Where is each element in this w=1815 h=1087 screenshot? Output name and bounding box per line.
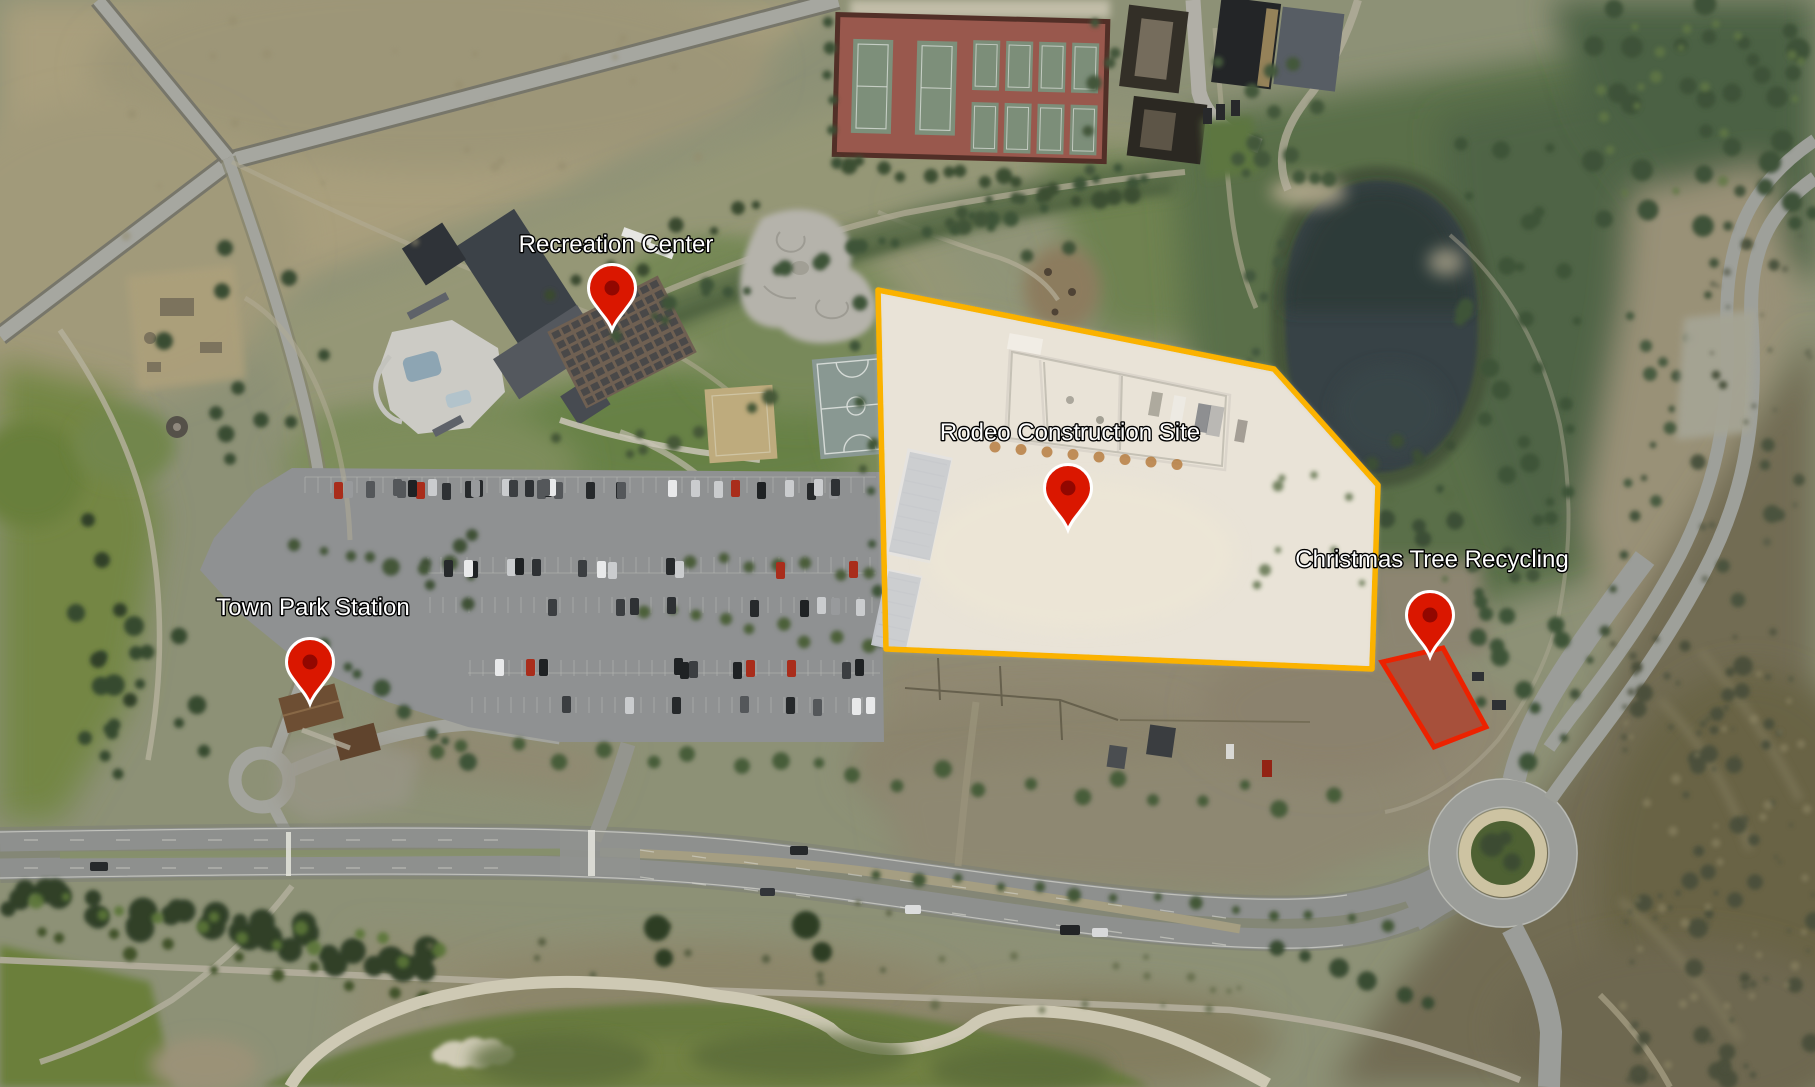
svg-text:Christmas Tree Recycling: Christmas Tree Recycling [1295, 546, 1568, 573]
svg-text:Rodeo Construction Site: Rodeo Construction Site [940, 419, 1200, 446]
svg-text:Town Park Station: Town Park Station [216, 594, 409, 621]
svg-text:Recreation Center: Recreation Center [519, 231, 714, 258]
